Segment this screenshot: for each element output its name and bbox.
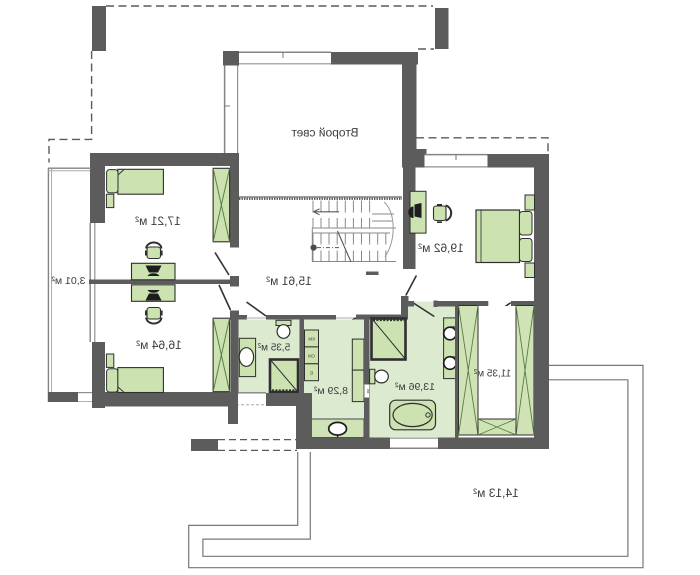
svg-text:ВК: ВК	[366, 388, 370, 394]
svg-text:17,21 м²: 17,21 м²	[135, 214, 181, 228]
svg-text:16,64 м²: 16,64 м²	[136, 338, 182, 352]
svg-text:Б: Б	[310, 371, 313, 376]
svg-text:15,61 м²: 15,61 м²	[266, 274, 312, 288]
svg-text:8,29 м²: 8,29 м²	[313, 385, 348, 397]
svg-text:Второй свет: Второй свет	[291, 126, 359, 140]
svg-text:КМ: КМ	[308, 337, 315, 342]
svg-text:14,13 м²: 14,13 м²	[473, 486, 519, 500]
svg-text:13,96 м²: 13,96 м²	[395, 381, 435, 393]
svg-text:5,35 м²: 5,35 м²	[257, 343, 290, 354]
svg-text:19,62 м²: 19,62 м²	[418, 241, 464, 255]
svg-text:СМ: СМ	[308, 354, 315, 359]
svg-text:11,35 м²: 11,35 м²	[473, 369, 511, 380]
svg-text:3,01 м²: 3,01 м²	[51, 275, 86, 287]
